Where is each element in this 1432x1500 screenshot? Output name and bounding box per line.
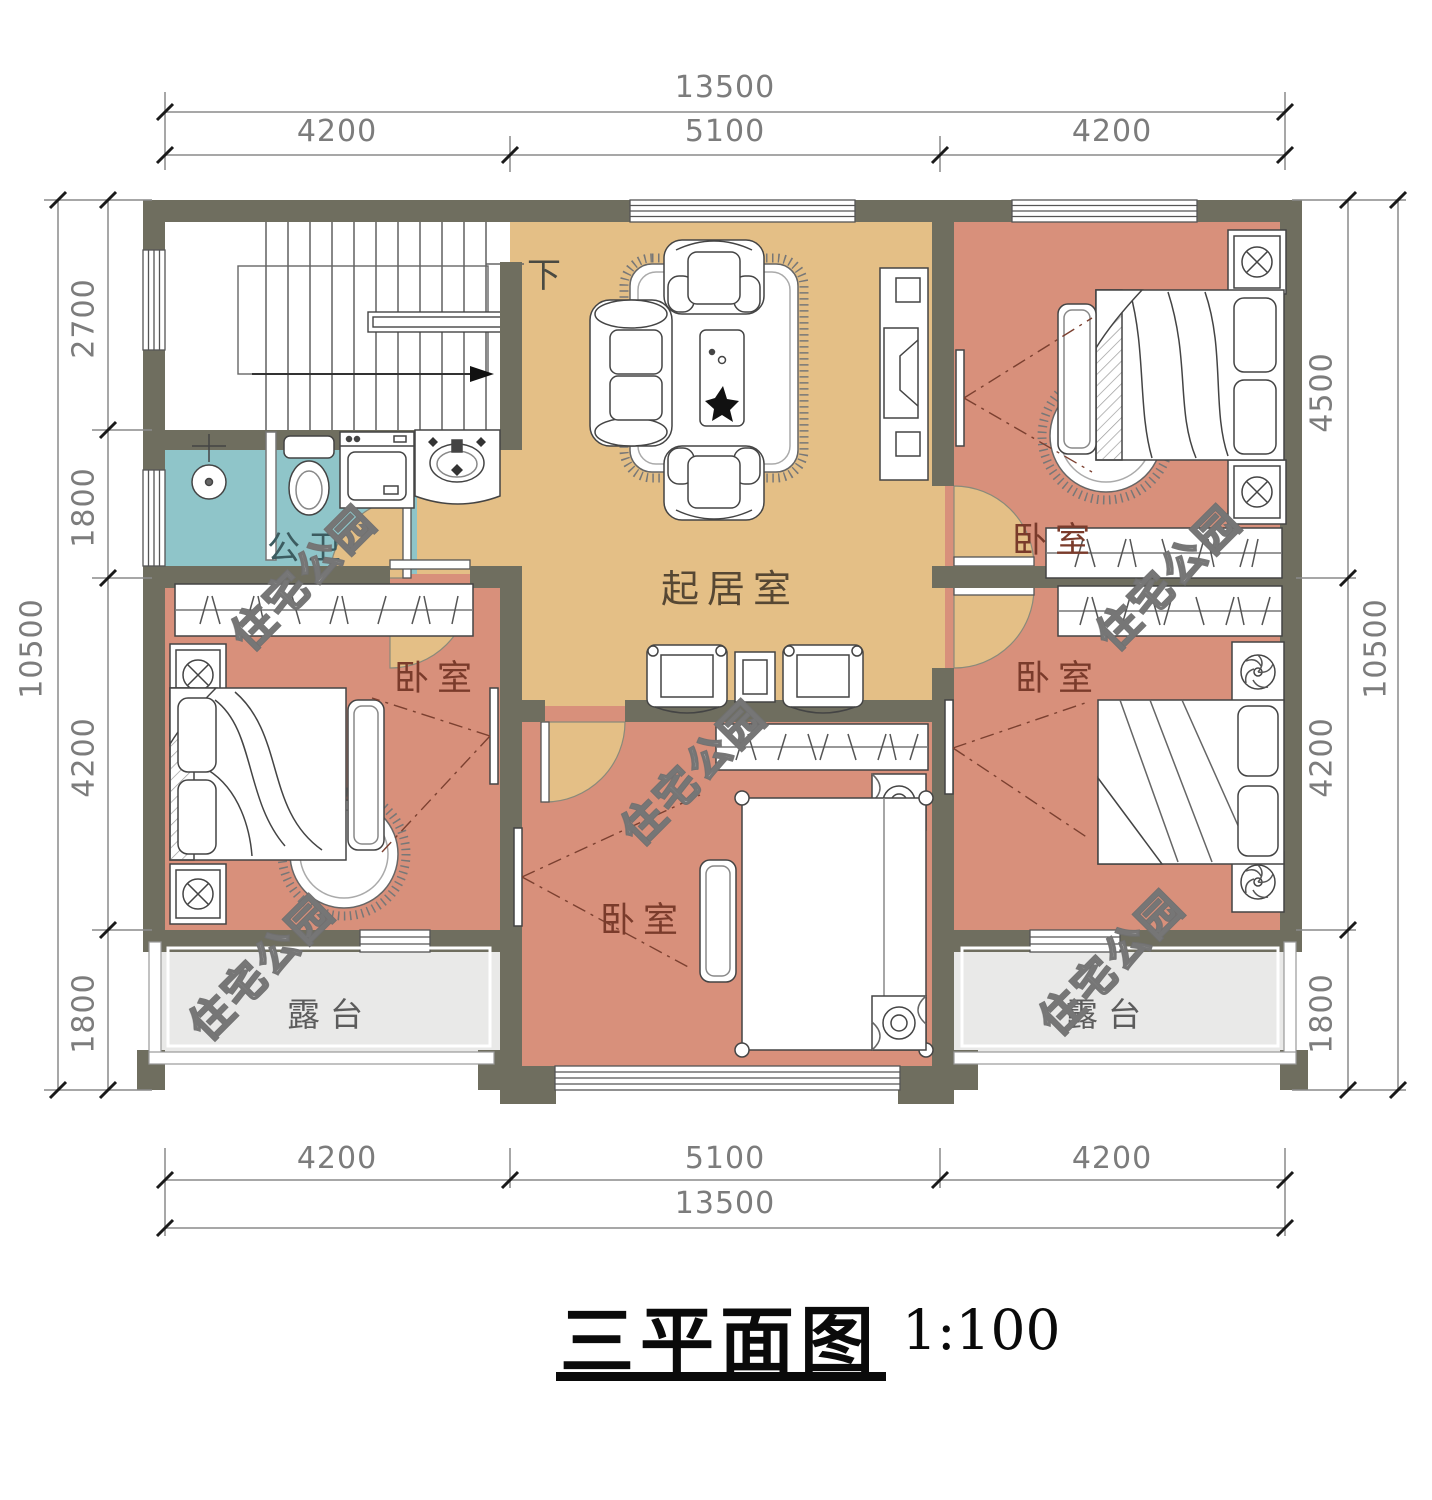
dim-bottom-seg-1: 4200 bbox=[277, 1141, 397, 1176]
dim-left-seg-3: 4200 bbox=[67, 698, 102, 818]
room-label-living: 起居室 bbox=[645, 558, 815, 613]
drawing-scale: 1:100 bbox=[902, 1298, 1061, 1362]
dim-left-seg-1: 2700 bbox=[67, 259, 102, 379]
room-label-bedroom-bottom-center: 卧室 bbox=[588, 892, 698, 943]
stair-down-label: 下 bbox=[524, 248, 564, 297]
dim-right-seg-2: 4200 bbox=[1305, 698, 1340, 818]
dim-top-seg-2: 5100 bbox=[665, 114, 785, 149]
dim-top-seg-3: 4200 bbox=[1052, 114, 1172, 149]
room-label-bedroom-left: 卧室 bbox=[382, 650, 492, 701]
dim-right-seg-3: 1800 bbox=[1305, 954, 1340, 1074]
dim-left-seg-4: 1800 bbox=[67, 954, 102, 1074]
room-label-bedroom-bottom-right: 卧室 bbox=[1003, 650, 1113, 701]
drawing-title: 三平面图 bbox=[560, 1282, 880, 1389]
dim-bottom-seg-2: 5100 bbox=[665, 1141, 785, 1176]
dim-bottom-seg-3: 4200 bbox=[1052, 1141, 1172, 1176]
dim-left-overall: 10500 bbox=[15, 579, 50, 719]
room-label-bedroom-top-right: 卧室 bbox=[1000, 512, 1110, 563]
room-label-terrace-left: 露台 bbox=[270, 988, 390, 1036]
dim-right-overall: 10500 bbox=[1359, 579, 1394, 719]
dim-right-seg-1: 4500 bbox=[1305, 333, 1340, 453]
dim-left-seg-2: 1800 bbox=[67, 448, 102, 568]
floor-plan-canvas: 13500 4200 5100 4200 4200 5100 4200 1350… bbox=[0, 0, 1432, 1500]
dim-top-seg-1: 4200 bbox=[277, 114, 397, 149]
dim-bottom-overall: 13500 bbox=[655, 1186, 795, 1221]
dim-top-overall: 13500 bbox=[655, 70, 795, 105]
